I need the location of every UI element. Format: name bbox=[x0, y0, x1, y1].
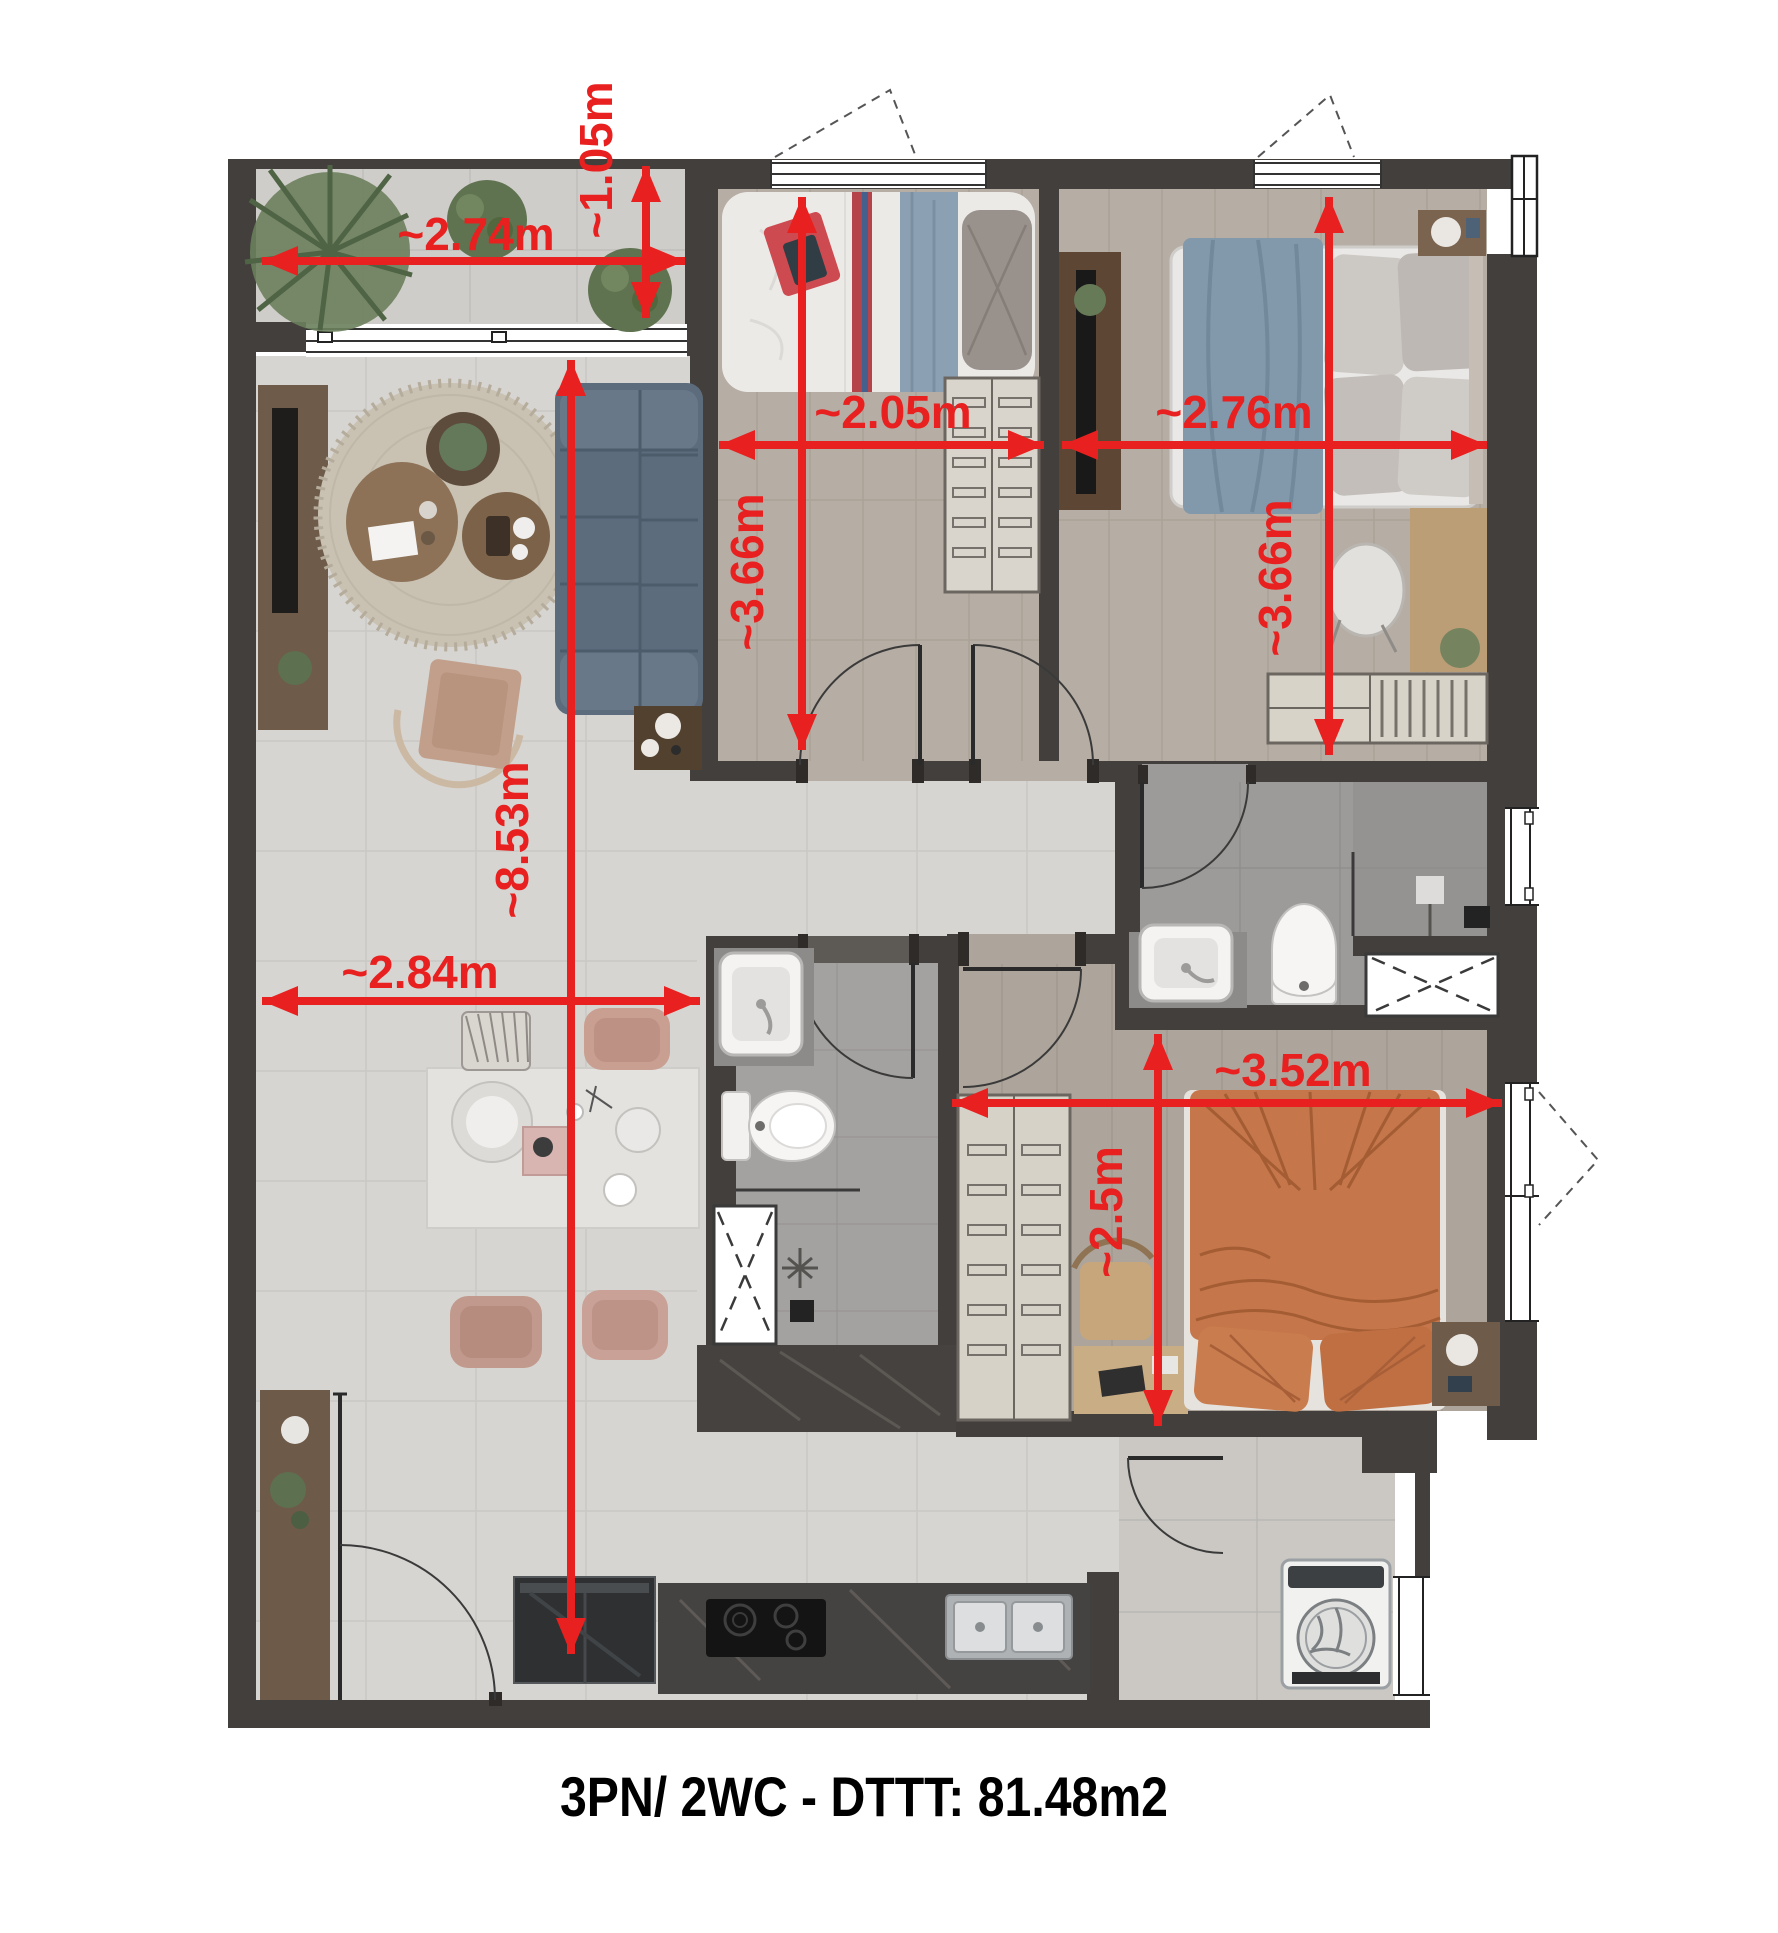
svg-text:~3.52m: ~3.52m bbox=[1214, 1044, 1371, 1096]
svg-text:~2.74m: ~2.74m bbox=[397, 208, 554, 260]
svg-text:~2.76m: ~2.76m bbox=[1155, 386, 1312, 438]
svg-text:3PN/ 2WC - DTTT: 81.48m2: 3PN/ 2WC - DTTT: 81.48m2 bbox=[560, 1765, 1168, 1828]
svg-text:~1.05m: ~1.05m bbox=[570, 81, 622, 238]
svg-text:~8.53m: ~8.53m bbox=[486, 761, 538, 918]
svg-text:~2.05m: ~2.05m bbox=[814, 386, 971, 438]
svg-text:~2.5m: ~2.5m bbox=[1080, 1146, 1132, 1278]
svg-text:~3.66m: ~3.66m bbox=[1249, 499, 1301, 656]
svg-text:~3.66m: ~3.66m bbox=[721, 493, 773, 650]
svg-text:~2.84m: ~2.84m bbox=[341, 946, 498, 998]
